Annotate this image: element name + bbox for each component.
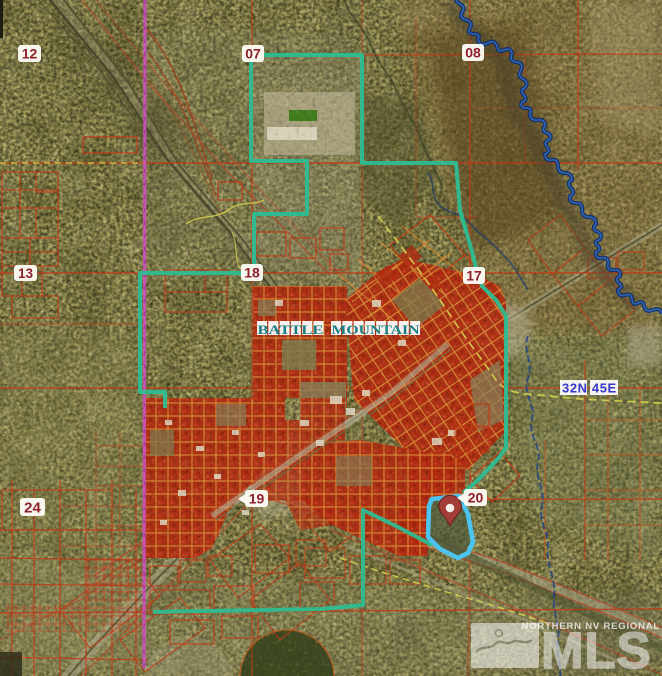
- svg-text:19: 19: [249, 491, 265, 507]
- svg-text:BATTLE: BATTLE: [258, 323, 324, 337]
- svg-text:MOUNTAIN: MOUNTAIN: [332, 323, 420, 337]
- svg-text:MLS: MLS: [541, 622, 652, 676]
- svg-text:07: 07: [245, 46, 261, 62]
- svg-text:18: 18: [244, 265, 260, 281]
- svg-text:17: 17: [466, 268, 482, 284]
- svg-text:32N 45E: 32N 45E: [562, 381, 617, 396]
- svg-text:08: 08: [465, 45, 481, 61]
- svg-text:13: 13: [18, 266, 34, 281]
- svg-text:12: 12: [22, 46, 38, 62]
- svg-text:20: 20: [468, 490, 484, 506]
- svg-text:24: 24: [24, 500, 41, 517]
